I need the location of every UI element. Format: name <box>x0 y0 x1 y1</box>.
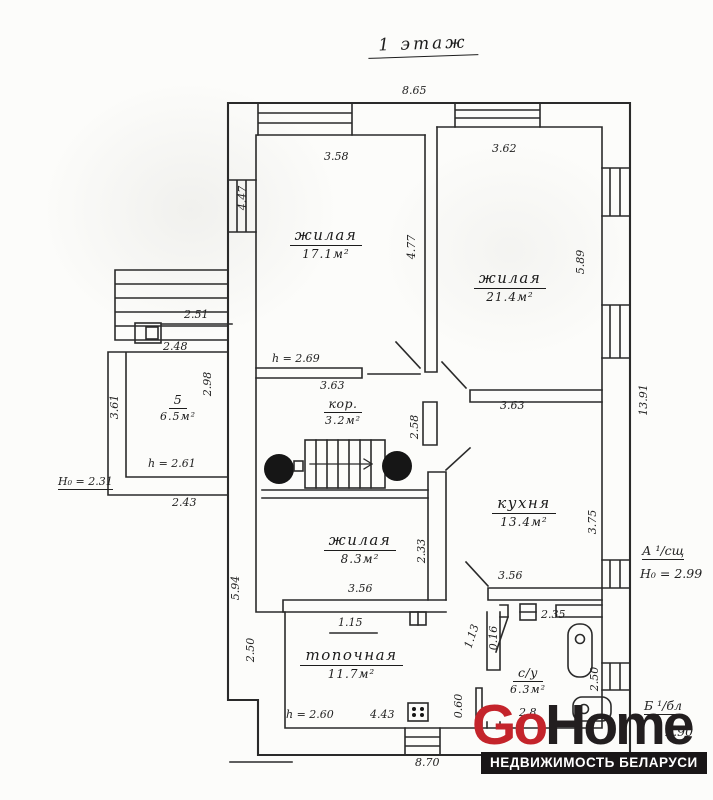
dim-top-total: 8.65 <box>402 85 427 97</box>
door-swing <box>442 362 466 388</box>
section-a-label: А ¹/сщ <box>642 544 684 560</box>
dim-annex-inner: 2.48 <box>163 341 188 353</box>
dim-door-b: 0.16 <box>488 618 504 658</box>
room-name: кор. <box>324 396 363 413</box>
gohome-logo: GoHome НЕДВИЖИМОСТЬ БЕЛАРУСИ <box>472 698 707 774</box>
room-area: 8.3м² <box>316 552 404 566</box>
boiler-stove-icon <box>408 703 428 721</box>
gohome-wordmark: GoHome <box>472 698 707 752</box>
note-height-231: H₀ = 2.31 <box>58 476 113 490</box>
dim-living3-bottom: 3.56 <box>348 583 373 595</box>
room-label-living2: жилая 21.4м² <box>468 268 552 304</box>
dim-bottom-total: 8.70 <box>415 757 440 769</box>
room-name: с/у <box>513 665 543 682</box>
dim-living3-right: 2.33 <box>416 531 432 571</box>
dim-annex-bottom: 2.43 <box>172 497 197 509</box>
room-label-boiler: топочная 11.7м² <box>294 645 409 681</box>
plan-title: 1 этаж <box>368 32 479 59</box>
dim-boiler-top: 1.15 <box>338 617 363 629</box>
dim-door-width: 0.60 <box>453 686 469 726</box>
stove-icon <box>382 451 412 481</box>
note-ceiling-261: h = 2.61 <box>148 458 196 470</box>
dim-annex-left: 3.61 <box>109 387 125 427</box>
room-label-corridor: кор. 3.2м² <box>318 393 368 427</box>
logo-tagline: НЕДВИЖИМОСТЬ БЕЛАРУСИ <box>481 752 707 774</box>
dim-corridor-right: 3.63 <box>500 400 525 412</box>
dim-right-total: 13.91 <box>638 380 654 420</box>
dim-annex-top: 2.51 <box>184 309 209 321</box>
room-area: 13.4м² <box>478 515 570 529</box>
dim-left-wall-upper: 4.47 <box>237 178 253 218</box>
room-name: жилая <box>290 226 363 246</box>
note-ceiling-260: h = 2.60 <box>286 709 334 721</box>
outdoor-steps-icon <box>115 270 228 340</box>
room-area: 11.7м² <box>294 667 409 681</box>
dim-corridor-stub: 2.58 <box>409 407 425 447</box>
exterior-walls <box>228 103 630 755</box>
room-area: 17.1м² <box>282 247 370 261</box>
logo-go-text: Go <box>472 693 545 757</box>
dim-top-right-room: 3.62 <box>492 143 517 155</box>
window-symbols <box>228 103 630 755</box>
dim-corridor-top: 3.63 <box>320 380 345 392</box>
room-area: 3.2м² <box>318 414 368 427</box>
scanned-floorplan: 1 этаж жилая 17.1м² жилая 21.4м² кор. 3.… <box>0 0 713 800</box>
room-label-living3: жилая 8.3м² <box>316 530 404 566</box>
room-area: 6.5м² <box>156 410 200 423</box>
dim-bath-door: 2.35 <box>541 609 566 621</box>
dim-annex-right: 2.98 <box>202 364 218 404</box>
door-swing <box>446 448 470 470</box>
logo-home-text: Home <box>545 693 691 757</box>
dim-top-left-room: 3.58 <box>324 151 349 163</box>
room-name: топочная <box>300 646 402 666</box>
door-swing <box>396 342 420 368</box>
room-label-living1: жилая 17.1м² <box>282 225 370 261</box>
note-ceiling-269: h = 2.69 <box>272 353 320 365</box>
stair-direction-arrow <box>310 459 372 469</box>
door-swing <box>466 562 488 586</box>
dim-left-wall-lower: 5.94 <box>230 568 246 608</box>
dim-boiler-left: 2.50 <box>245 630 261 670</box>
room-name: жилая <box>324 531 397 551</box>
dim-kitchen-right: 3.75 <box>587 502 603 542</box>
room-name: 5 <box>169 392 187 409</box>
dim-right-upper: 5.89 <box>575 242 591 282</box>
room-name: кухня <box>492 494 555 514</box>
stove-icon <box>264 454 294 484</box>
dim-living-divider: 4.77 <box>406 227 422 267</box>
room-area: 21.4м² <box>468 290 552 304</box>
room-label-5: 5 6.5м² <box>156 389 200 423</box>
dim-boiler-bottom: 4.43 <box>370 709 395 721</box>
dim-kitchen-bottom: 3.56 <box>498 570 523 582</box>
room-label-sanitary: с/у 6.3м² <box>504 662 552 696</box>
room-label-kitchen: кухня 13.4м² <box>478 493 570 529</box>
room-name: жилая <box>474 269 547 289</box>
interior-walls <box>256 127 602 728</box>
section-a-height: H₀ = 2.99 <box>640 567 702 581</box>
